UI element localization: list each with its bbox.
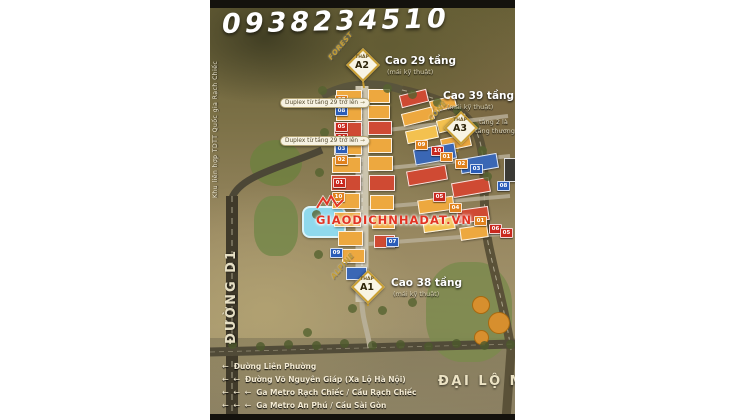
duplex-callout: Duplex từ tầng 29 trở lên — [280, 98, 370, 108]
tower-name: A3 — [446, 124, 474, 134]
block-number-badge: 08 — [497, 181, 510, 191]
block-number-badge: 01 — [333, 178, 346, 188]
tower-height-label: Cao 29 tầng — [385, 55, 456, 67]
garden-circle — [474, 330, 489, 345]
road-label-duong-d1: ĐƯỜNG D1 — [224, 246, 239, 344]
building-block — [338, 231, 363, 246]
bottom-black-bar — [210, 414, 515, 420]
tower-name: A2 — [348, 61, 376, 71]
contact-phone-number: 0938234510 — [222, 3, 451, 40]
building-block — [368, 156, 393, 171]
building-block — [369, 175, 395, 191]
tower-height-sub: (mái kỹ thuật) — [387, 68, 433, 76]
block-number-badge: 07 — [386, 237, 399, 247]
block-number-badge: 05 — [335, 122, 348, 132]
building-block — [368, 89, 390, 103]
garden-circle — [472, 296, 490, 314]
block-number-badge: 01 — [440, 152, 453, 162]
road-label-dai-lo: ĐẠI LỘ MA — [438, 374, 515, 389]
watermark: GIAODICHNHADAT.VN — [316, 194, 472, 227]
tower-height-label: Cao 39 tầng — [443, 90, 514, 102]
watermark-logo-icon — [316, 195, 346, 209]
screenshot-stage: 0708050403020110090910010203080504010605… — [0, 0, 740, 420]
block-number-badge: 09 — [415, 140, 428, 150]
garden-circle — [488, 312, 510, 334]
tower-height-label: Cao 38 tầng — [391, 277, 462, 289]
block-number-badge: 02 — [335, 155, 348, 165]
block-number-badge: 03 — [470, 164, 483, 174]
tower-height-sub: (mái kỹ thuật) — [447, 103, 493, 111]
left-edge-vertical-label: Khu liên hợp TDTT Quốc gia Rạch Chiếc — [212, 12, 219, 198]
tower-note: tầng 2 là — [479, 118, 508, 126]
top-black-bar — [210, 0, 515, 8]
site-map: 0708050403020110090910010203080504010605… — [210, 0, 515, 420]
block-number-badge: 02 — [455, 159, 468, 169]
tower-height-sub: (mái kỹ thuật) — [393, 290, 439, 298]
tower-note: tầng thương mại — [475, 127, 515, 135]
tower-name: A1 — [353, 283, 381, 293]
block-number-badge: 09 — [330, 248, 343, 258]
block-number-badge: 01 — [474, 216, 487, 226]
building-block — [504, 158, 515, 182]
building-block — [368, 138, 392, 153]
duplex-callout: Duplex từ tầng 29 trở lên — [280, 136, 370, 146]
building-block — [368, 121, 392, 135]
block-number-badge: 05 — [500, 228, 513, 238]
watermark-text: GIAODICHNHADAT.VN — [316, 213, 472, 227]
building-block — [368, 105, 390, 119]
